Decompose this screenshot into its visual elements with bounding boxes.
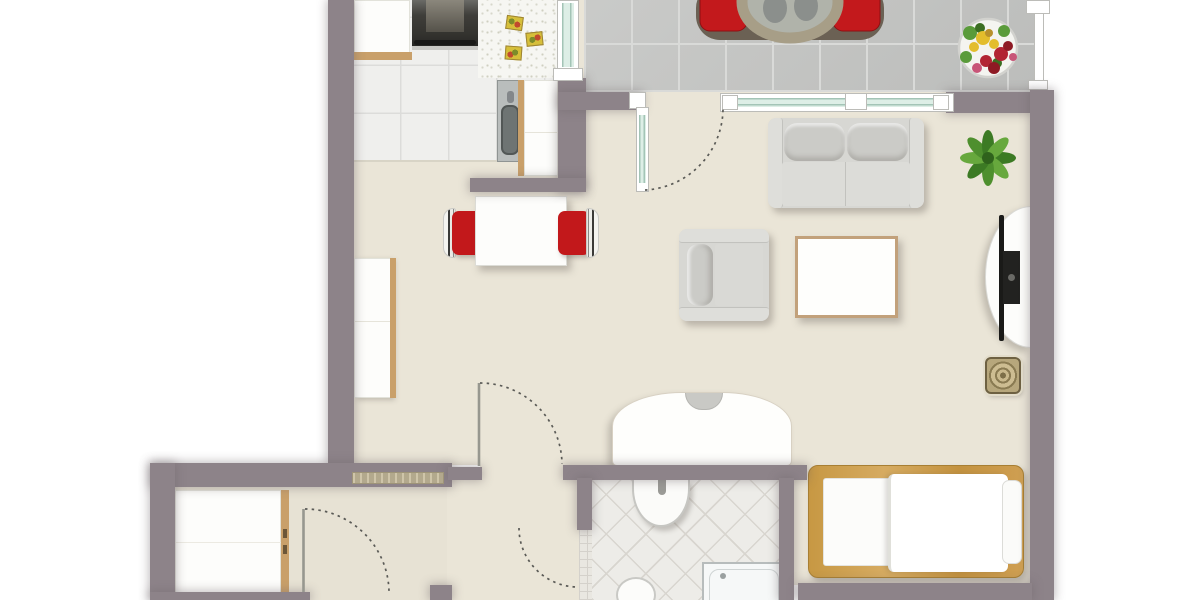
- wall-bathroom-left: [577, 478, 592, 530]
- wardrobe-hinge-mark-1: [283, 529, 287, 538]
- radiator-grille: [352, 472, 444, 484]
- wall-hallway-bottom: [150, 592, 310, 600]
- tv-receiver-knob: [1008, 274, 1015, 281]
- armchair: [679, 229, 769, 321]
- sofa-armrest-right: [909, 118, 924, 208]
- wall-kitchen-stub: [470, 178, 586, 192]
- shower-drain-icon: [720, 573, 726, 579]
- tall-cabinet: [354, 258, 392, 398]
- sofa-seat: [782, 162, 910, 206]
- stove-inner-panel: [426, 0, 464, 32]
- coffee-table: [795, 236, 898, 318]
- washbasin-faucet-icon: [658, 480, 666, 495]
- stove-handle: [414, 40, 476, 45]
- cutting-board-2: [525, 31, 543, 47]
- stove-icon: [412, 0, 478, 50]
- cutting-board-3: [505, 45, 523, 60]
- bed-duvet: [888, 474, 1008, 572]
- armchair-seat: [715, 244, 763, 306]
- terrace-floor-tiles: [584, 0, 1034, 92]
- wardrobe-hinge-mark-2: [283, 545, 287, 554]
- hallway-wardrobe: [175, 490, 281, 593]
- kitchen-counter-wood-trim: [354, 52, 412, 60]
- living-door-threshold: [480, 465, 565, 481]
- wall-terrace-right: [946, 92, 1032, 113]
- dining-table: [475, 196, 567, 266]
- armchair-armrest-top: [679, 229, 769, 243]
- living-window-mullion-right: [933, 95, 949, 110]
- round-side-stool: [985, 357, 1021, 394]
- sofa-armrest-left: [768, 118, 783, 208]
- curved-sideboard: [612, 392, 792, 466]
- wall-right: [1030, 90, 1054, 600]
- living-window-mullion-center: [845, 93, 867, 110]
- armchair-back-cushion: [687, 244, 713, 306]
- terrace-door-threshold: [642, 92, 726, 113]
- stove-base-strip: [412, 46, 478, 50]
- cabinet-seam: [525, 132, 559, 133]
- sink-basin: [501, 105, 519, 155]
- sofa-back-cushion-left: [784, 123, 845, 161]
- floor-plan: [0, 0, 1200, 600]
- sideboard-notch: [685, 393, 723, 410]
- sofa-back-cushion-right: [847, 123, 908, 161]
- wall-bathroom-right: [779, 478, 794, 600]
- sofa-seat-seam: [845, 162, 846, 206]
- dining-chair-right-back: [586, 208, 599, 258]
- wardrobe-seam: [176, 542, 282, 543]
- armchair-armrest-bottom: [679, 307, 769, 321]
- sofa: [768, 118, 924, 208]
- shower-tray: [702, 562, 786, 600]
- terrace-door-glass: [639, 115, 646, 183]
- tall-cabinet-wood-edge: [390, 258, 396, 398]
- wall-bed-bottom: [798, 583, 1032, 600]
- wall-living-bottom: [563, 465, 807, 480]
- wall-left: [328, 0, 354, 465]
- kitchen-window-sill: [553, 68, 583, 81]
- kitchen-speckled-counter: [478, 0, 560, 78]
- tv-receiver-box: [1003, 251, 1020, 304]
- cutting-board-1: [505, 15, 524, 31]
- kitchen-cabinet-right: [524, 80, 558, 176]
- living-window-mullion-left: [722, 95, 738, 110]
- bathroom-wall-tile-strip: [579, 524, 592, 600]
- wardrobe-wood-edge: [281, 490, 289, 593]
- living-window-glass: [726, 98, 948, 107]
- wall-living-door-left: [448, 467, 482, 480]
- terrace-railing-post-top: [1026, 0, 1050, 14]
- sink-faucet-icon: [507, 91, 514, 103]
- bed-pillow: [1002, 480, 1022, 564]
- wall-hallway-left: [150, 463, 175, 600]
- terrace-railing-post-bottom: [1028, 80, 1048, 90]
- kitchen-counter-topleft: [354, 0, 410, 54]
- kitchen-window-glass: [562, 3, 574, 67]
- tall-cabinet-seam: [355, 321, 393, 322]
- corridor-floor: [445, 476, 595, 600]
- wall-hallway-stub: [430, 585, 452, 600]
